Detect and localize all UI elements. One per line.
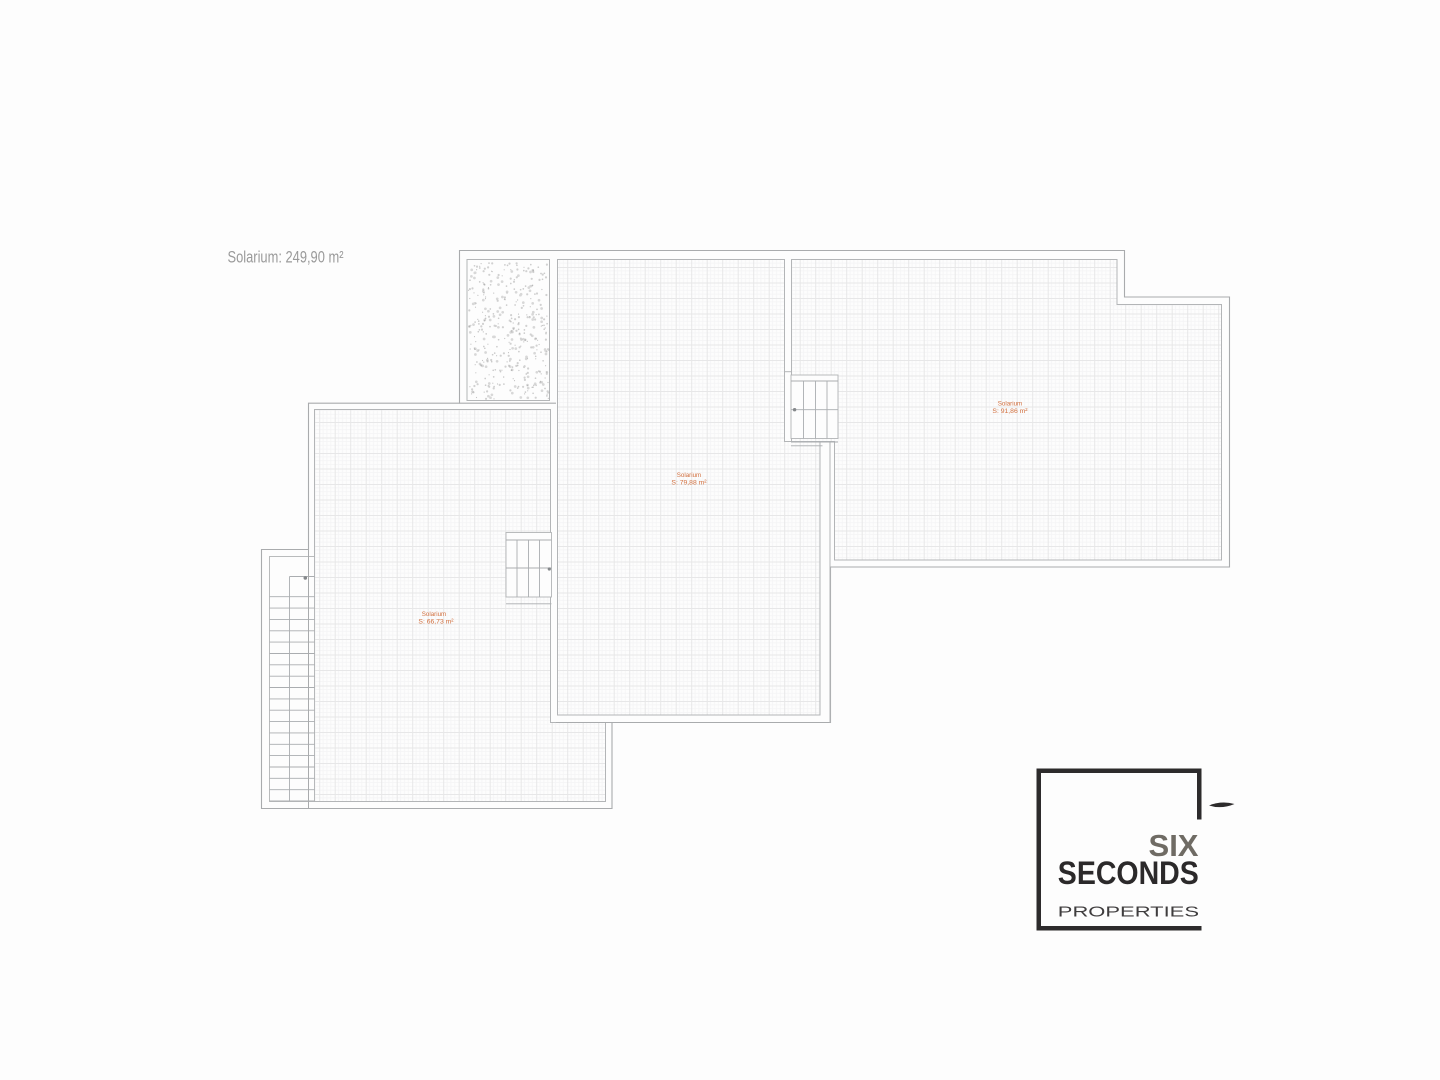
svg-text:Solarium: Solarium (422, 611, 446, 618)
svg-text:PROPERTIES: PROPERTIES (1058, 904, 1199, 921)
svg-text:S: 66,73 m²: S: 66,73 m² (418, 619, 454, 626)
svg-text:S: 79,88 m²: S: 79,88 m² (671, 480, 707, 487)
svg-text:Solarium: Solarium (677, 472, 701, 479)
svg-text:Solarium: 249,90 m²: Solarium: 249,90 m² (228, 248, 344, 266)
svg-text:S: 91,86 m²: S: 91,86 m² (992, 408, 1028, 415)
svg-text:Solarium: Solarium (998, 401, 1022, 408)
svg-text:SECONDS: SECONDS (1058, 855, 1199, 891)
